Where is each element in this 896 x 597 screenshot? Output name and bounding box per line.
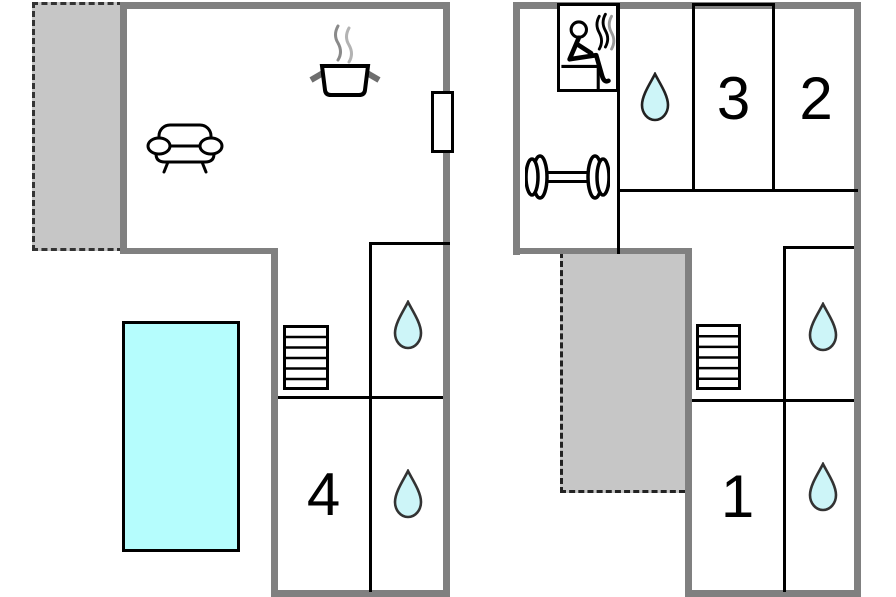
swimming-pool [122,321,240,552]
partition-wall [369,242,450,245]
water-drop-icon [640,72,670,122]
water-drop-icon [808,462,838,512]
dumbbell-icon [525,152,610,202]
stairs-icon [696,324,741,390]
window-door-marker [431,91,454,153]
wall-segment [120,2,450,9]
water-drop-icon [393,300,423,350]
room-number: 4 [307,460,340,529]
room-label-3: 3 [695,8,772,189]
wall-segment [120,2,127,254]
wall-segment [513,248,688,254]
wall-segment [513,2,520,255]
room-number: 1 [721,462,754,531]
water-drop-icon [808,302,838,352]
wall-segment [854,2,861,597]
wall-segment [271,590,450,597]
stairs-icon [283,325,329,390]
terrace-ground-floor [32,2,123,251]
wall-segment [120,248,278,254]
room-number: 3 [717,64,750,133]
room-label-1: 1 [692,402,783,590]
wall-segment [271,248,278,597]
sofa-icon [142,116,228,174]
terrace-upper-floor [560,252,685,493]
room-label-4: 4 [278,399,369,590]
room-label-2: 2 [778,8,854,189]
partition-wall [783,246,854,249]
wall-segment [685,248,692,597]
room-number: 2 [799,64,832,133]
cooking-pot-icon [303,20,387,102]
wall-segment [685,590,861,597]
water-drop-icon [393,469,423,519]
partition-wall [783,248,786,592]
partition-wall [618,189,858,192]
floor-plan: 4 [0,0,896,597]
sauna-icon [557,3,619,92]
partition-wall [369,242,372,592]
